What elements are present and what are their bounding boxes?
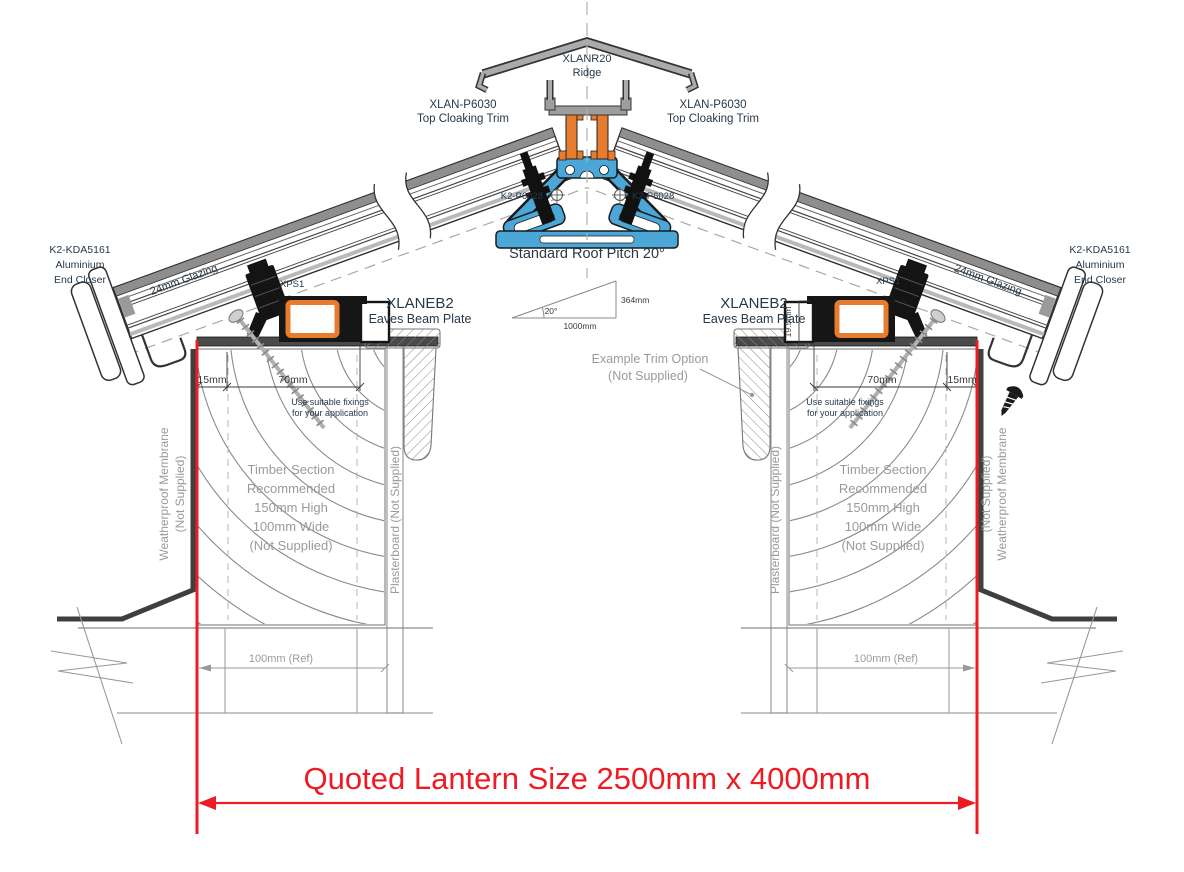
end-closer-l3-left: End Closer bbox=[54, 274, 106, 286]
pitch-run-label: 1000mm bbox=[563, 321, 596, 331]
plasterboard-label-left: Plasterboard (Not Supplied) bbox=[388, 446, 402, 594]
eaves-model-left: XLANEB2 bbox=[386, 295, 454, 312]
dim-70-left: 70mm bbox=[278, 374, 307, 386]
left-side-assembly bbox=[51, 0, 795, 834]
eaves-label-left: Eaves Beam Plate bbox=[369, 312, 472, 326]
timber-l2-right: Recommended bbox=[839, 481, 927, 496]
timber-l1-right: Timber Section bbox=[840, 462, 927, 477]
trim-leader-dot bbox=[750, 393, 754, 397]
panel-top-cap bbox=[113, 128, 555, 296]
timber-l2-left: Recommended bbox=[247, 481, 335, 496]
end-closer-model-right: K2-KDA5161 bbox=[1069, 244, 1130, 256]
ridge-name-label: Ridge bbox=[573, 67, 602, 79]
membrane-l1-right: Weatherproof Membrane bbox=[995, 427, 1009, 561]
trim-leg bbox=[404, 348, 436, 460]
dim-15-left: 15mm bbox=[197, 374, 226, 386]
timber-l5-left: (Not Supplied) bbox=[249, 538, 332, 553]
pitch-triangle bbox=[512, 281, 616, 318]
end-closer-l2-right: Aluminium bbox=[1075, 259, 1124, 271]
position-markers bbox=[549, 187, 628, 203]
dim-70-right: 70mm bbox=[867, 374, 896, 386]
timber-l1-left: Timber Section bbox=[248, 462, 335, 477]
screw-icon bbox=[994, 383, 1026, 421]
right-side-assembly-mirror bbox=[379, 0, 1123, 834]
trim-option-l1: Example Trim Option bbox=[592, 352, 709, 366]
bolt-model-right: K2-P6028 bbox=[632, 191, 674, 202]
cloak-name-right: Top Cloaking Trim bbox=[667, 113, 759, 125]
bolt-model-left: K2-P6028 bbox=[501, 191, 543, 202]
ridge-model-label: XLANR20 bbox=[563, 53, 612, 65]
end-closer-model-left: K2-KDA5161 bbox=[49, 244, 110, 256]
cloak-model-left: XLAN-P6030 bbox=[429, 99, 496, 111]
ref-dim-right: 100mm (Ref) bbox=[854, 653, 918, 665]
timber-l4-left: 100mm Wide bbox=[253, 519, 330, 534]
quoted-lantern-size: Quoted Lantern Size 2500mm x 4000mm bbox=[304, 761, 871, 796]
timber-l5-right: (Not Supplied) bbox=[841, 538, 924, 553]
ridge-assembly bbox=[479, 2, 695, 278]
roof-lantern-section-drawing: XLANR20 Ridge XLAN-P6030 Top Cloaking Tr… bbox=[0, 0, 1184, 872]
membrane-l2-left: (Not Supplied) bbox=[173, 456, 187, 533]
xps-label-right: XPS1 bbox=[876, 276, 900, 287]
timber-l3-left: 150mm High bbox=[254, 500, 328, 515]
cloak-model-right: XLAN-P6030 bbox=[679, 99, 746, 111]
end-closer-l3-right: End Closer bbox=[1074, 274, 1126, 286]
fixings-l1-right: Use suitable fixings bbox=[806, 397, 884, 407]
plasterboard-label-right: Plasterboard (Not Supplied) bbox=[768, 446, 782, 594]
quoted-size-dimension bbox=[198, 796, 976, 810]
dim-15-right: 15mm bbox=[947, 374, 976, 386]
eaves-model-right: XLANEB2 bbox=[720, 295, 788, 312]
timber-l3-right: 150mm High bbox=[846, 500, 920, 515]
ref-dim-left: 100mm (Ref) bbox=[249, 653, 313, 665]
fixings-l2-right: for your application bbox=[807, 408, 883, 418]
pitch-rise-label: 364mm bbox=[621, 295, 649, 305]
xps-label-left: XPS1 bbox=[280, 279, 304, 290]
fixings-l1-left: Use suitable fixings bbox=[291, 397, 369, 407]
cloak-name-left: Top Cloaking Trim bbox=[417, 113, 509, 125]
pitch-title: Standard Roof Pitch 20° bbox=[509, 246, 665, 262]
end-closer-l2-left: Aluminium bbox=[55, 259, 104, 271]
membrane-l2-right: (Not Supplied) bbox=[979, 456, 993, 533]
fixings-l2-left: for your application bbox=[292, 408, 368, 418]
trim-option-l2: (Not Supplied) bbox=[608, 369, 688, 383]
membrane-l1-left: Weatherproof Membrane bbox=[157, 427, 171, 561]
wall-break-zigzag bbox=[51, 651, 133, 683]
timber-l4-right: 100mm Wide bbox=[845, 519, 922, 534]
dim-19-5: 19.5mm bbox=[783, 307, 793, 338]
red-arrowhead-right bbox=[958, 796, 976, 810]
pitch-angle-label: 20° bbox=[545, 306, 558, 316]
eaves-beam-thermal-core bbox=[288, 303, 337, 336]
red-arrowhead-left bbox=[198, 796, 216, 810]
